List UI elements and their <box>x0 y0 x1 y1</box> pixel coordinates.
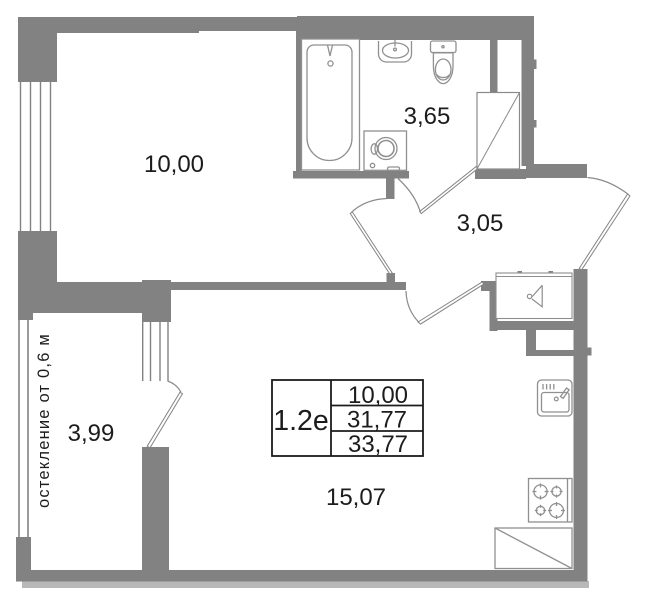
svg-text:10,00: 10,00 <box>144 151 204 178</box>
svg-text:31,77: 31,77 <box>347 407 407 434</box>
svg-text:3,65: 3,65 <box>404 103 451 130</box>
svg-text:1.2е: 1.2е <box>273 405 328 437</box>
svg-text:3,05: 3,05 <box>457 210 504 237</box>
svg-text:3,99: 3,99 <box>68 420 115 447</box>
svg-text:33,77: 33,77 <box>348 431 408 458</box>
svg-text:15,07: 15,07 <box>326 484 386 511</box>
svg-text:10,00: 10,00 <box>348 382 408 409</box>
svg-text:остекление от 0,6 м: остекление от 0,6 м <box>35 333 53 508</box>
